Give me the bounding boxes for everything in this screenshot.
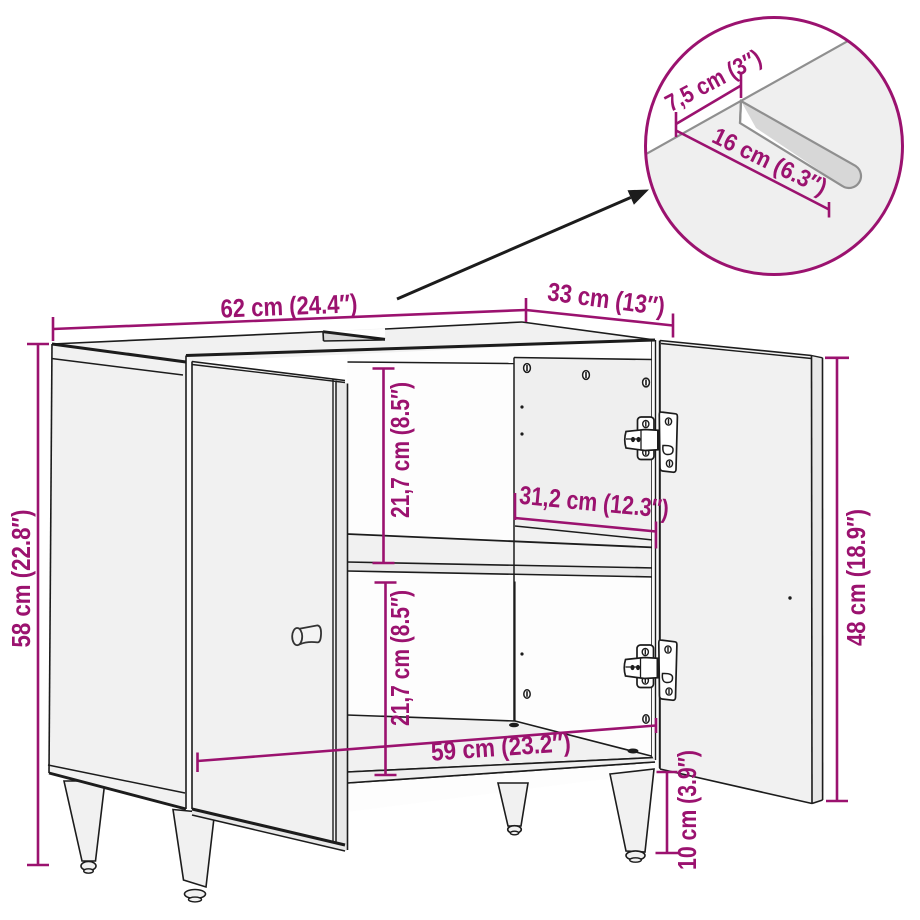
svg-text:21,7 cm (8.5″): 21,7 cm (8.5″) (385, 382, 415, 518)
svg-text:62 cm (24.4″): 62 cm (24.4″) (220, 288, 358, 323)
svg-text:10 cm (3.9″): 10 cm (3.9″) (672, 750, 702, 870)
svg-text:58 cm (22.8″): 58 cm (22.8″) (6, 510, 36, 648)
svg-text:21,7 cm (8.5″): 21,7 cm (8.5″) (385, 590, 415, 726)
svg-text:48 cm (18.9″): 48 cm (18.9″) (841, 509, 871, 646)
